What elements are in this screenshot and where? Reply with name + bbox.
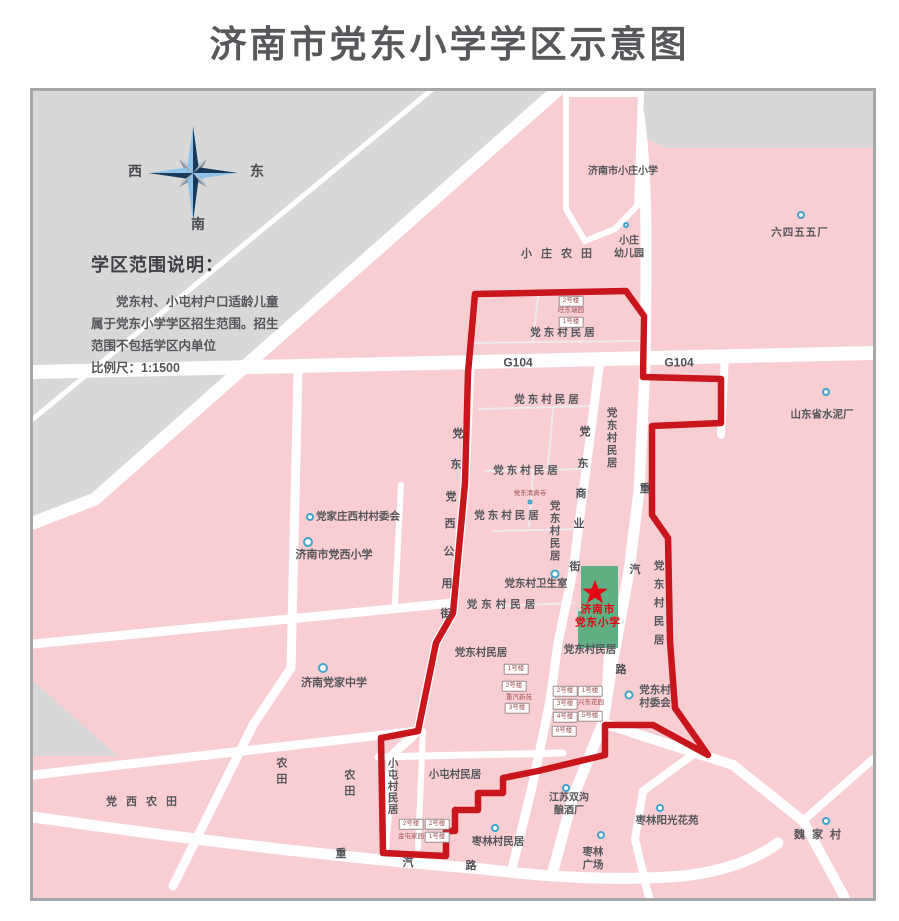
building-box-xd1: 1号楼 <box>578 686 603 697</box>
road-char-zhongqi-e1: 重 <box>640 483 651 497</box>
label-zaolin-residences: 枣林村民居 <box>472 835 525 848</box>
label-zaolin-sunshine: 枣林阳光花苑 <box>636 814 699 827</box>
poi-winery <box>562 784 570 792</box>
label-dangjia-middle: 济南党家中学 <box>301 677 367 691</box>
road-char-gongyong-4: 西 <box>445 518 456 532</box>
building-box-jt2a: 2号楼 <box>399 819 424 830</box>
label-dangdong-residences-v3: 党东村民居 <box>651 560 664 653</box>
poi-dangdong-committee <box>625 691 634 700</box>
poi-xiaozhuang-kindergarten <box>623 222 629 228</box>
road-char-gongyong-6: 用 <box>442 578 453 592</box>
label-dangdong-residences-2: 党东村民居 <box>514 393 582 406</box>
road-char-zhongqi-s1: 重 <box>336 848 347 862</box>
building-box-zq3: 3号楼 <box>505 703 530 714</box>
road-char-shangye-5: 街 <box>570 561 581 575</box>
label-wangdong-garden: 旺东瑞园 <box>558 307 584 315</box>
label-dangdong-residences-v1: 党东村民居 <box>604 407 617 470</box>
poi-dangjiazhuang-committee <box>306 513 314 521</box>
road-char-gongyong-7: 街 <box>441 608 452 622</box>
road-char-zhongqi-s2: 汽 <box>403 857 414 871</box>
school-name-line2: 党东小学 <box>575 616 621 629</box>
label-dangxi-farmland: 党西农田 <box>106 796 186 810</box>
label-dangxi-primary: 济南市党西小学 <box>296 549 373 563</box>
building-box-zq2: 2号楼 <box>502 681 527 692</box>
label-zaolin-square: 枣林 广场 <box>583 846 604 872</box>
building-box-xd6: 6号楼 <box>552 726 577 737</box>
label-dangdong-residences-5: 党东村民居 <box>467 598 540 611</box>
road-char-zhongqi-e2: 汽 <box>630 564 641 578</box>
label-jiangsu-winery: 江苏双沟 酿酒厂 <box>549 793 589 818</box>
label-dangdong-clinic: 党东村卫生室 <box>505 577 568 590</box>
label-xiaozhuang-primary: 济南市小庄小学 <box>588 166 658 179</box>
road-char-gongyong-3: 党 <box>446 491 457 505</box>
building-box-2: 2号楼 <box>559 296 584 307</box>
label-g104-west: G104 <box>503 356 532 371</box>
label-g104-east: G104 <box>664 356 693 371</box>
label-xiaozhuang-farmland: 小庄农田 <box>521 248 601 262</box>
school-name-line1: 济南市 <box>581 603 616 616</box>
building-box-xd5: 5号楼 <box>578 711 603 722</box>
poi-zaolin-residences <box>491 824 499 832</box>
label-cement-factory: 山东省水泥厂 <box>791 408 854 421</box>
label-dangdong-residences-3: 党东村民居 <box>493 464 561 477</box>
poi-zaolin-sunshine <box>656 804 664 812</box>
map-labels-layer: 济南市小庄小学小庄 幼儿园六四五五厂小庄农田党东村民居G104G104党东村民居… <box>33 91 873 898</box>
road-char-zhongqi-e3: 路 <box>616 664 627 678</box>
building-box-xd4: 4号楼 <box>553 712 578 723</box>
label-dangdong-residences-4: 党东村民居 <box>474 509 542 522</box>
road-char-shangye-2: 东 <box>578 458 589 472</box>
label-xiaozhuang-kindergarten: 小庄 幼儿园 <box>614 236 644 261</box>
poi-dangxi-primary <box>303 537 313 547</box>
poi-mosque <box>528 500 533 505</box>
page-title: 济南市党东小学学区示意图 <box>0 14 899 68</box>
label-farmland-v2: 农田 <box>341 769 355 801</box>
label-jintun-jiayuan: 金屯家园 <box>398 833 424 841</box>
poi-645-factory <box>797 211 805 219</box>
road-char-gongyong-5: 公 <box>444 546 455 560</box>
poi-cement-factory <box>822 388 830 396</box>
label-dangdong-residences-6: 党东村民居 <box>564 643 617 656</box>
road-char-zhongqi-s3: 路 <box>466 860 477 874</box>
road-char-shangye-3: 商 <box>576 488 587 502</box>
building-box-jt2b: 2号楼 <box>425 819 450 830</box>
label-dangdong-residences-1: 党东村民居 <box>530 326 598 339</box>
building-box-1: 1号楼 <box>559 317 584 328</box>
label-farmland-v1: 农田 <box>273 757 287 789</box>
road-char-gongyong-1: 党 <box>453 428 464 442</box>
label-xiaotun-residences: 小屯村民居 <box>429 768 482 781</box>
building-box-zq1: 1号楼 <box>504 664 529 675</box>
building-box-xd2: 2号楼 <box>553 686 578 697</box>
label-dangdong-residences-7: 党东村民居 <box>455 646 508 659</box>
road-char-gongyong-2: 东 <box>451 459 462 473</box>
label-xiaotun-residences-v: 小屯村民居 <box>385 757 398 815</box>
poi-weijia <box>822 817 830 825</box>
building-box-jt1: 1号楼 <box>425 832 450 843</box>
label-xingdong-garden: 兴东花园 <box>578 699 604 707</box>
district-map: 西 东 南 学区范围说明： 党东村、小屯村户口适龄儿童 属于党东小学学区招生范围… <box>30 88 876 901</box>
label-weijia-village: 魏家村 <box>794 829 848 843</box>
label-dangdong-residences-v2: 党东村民居 <box>547 500 560 563</box>
label-dangdong-mosque: 党东清真寺 <box>514 490 547 498</box>
poi-dangjia-middle <box>318 663 328 673</box>
label-645-factory: 六四五五厂 <box>771 226 829 239</box>
road-char-shangye-4: 业 <box>574 518 585 532</box>
label-dangjiazhuang-west-committee: 党家庄西村村委会 <box>316 510 400 523</box>
label-dangdong-committee: 党东村 村委会 <box>639 684 671 710</box>
poi-clinic <box>551 570 560 579</box>
poi-zaolin-square <box>597 831 605 839</box>
label-zhongqi-xinyuan: 重汽新苑 <box>506 694 532 702</box>
road-char-shangye-1: 党 <box>580 426 591 440</box>
building-box-xd3: 3号楼 <box>553 699 578 710</box>
page: 济南市党东小学学区示意图 <box>0 0 899 921</box>
